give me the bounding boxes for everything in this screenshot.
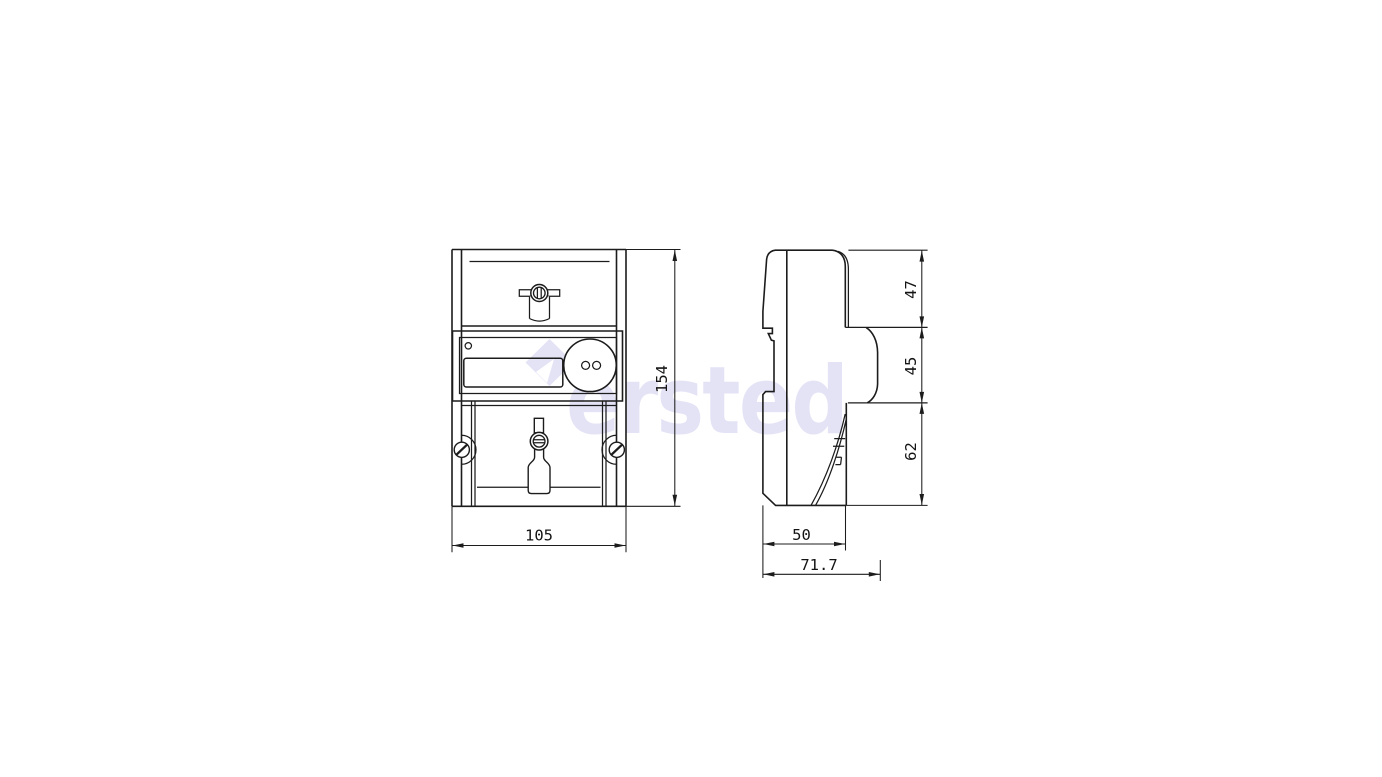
drawing-canvas: ersted <box>0 0 1382 777</box>
bottom-seal-screw-icon <box>528 418 550 493</box>
dim-label-45: 45 <box>902 357 920 376</box>
side-cover-bulge <box>866 328 877 403</box>
side-top-corner-inner <box>838 251 848 327</box>
left-ear-screw-icon <box>454 435 476 464</box>
dim-label-71-7: 71.7 <box>800 556 837 574</box>
dim-label-50: 50 <box>792 526 811 544</box>
dial-socket-icon <box>564 339 617 392</box>
dim-label-62: 62 <box>902 442 920 461</box>
indicator-led-icon <box>465 343 471 349</box>
dim-side-heights: 47 45 62 <box>846 250 927 505</box>
dim-side-depth-71-7: 71.7 <box>763 556 880 581</box>
top-seal-screw-icon <box>519 285 559 322</box>
dim-label-47: 47 <box>902 280 920 299</box>
dim-label-105: 105 <box>525 527 553 545</box>
dim-label-154: 154 <box>653 365 671 393</box>
side-top-corner-outer <box>833 250 846 327</box>
dim-front-width: 105 <box>452 506 626 552</box>
